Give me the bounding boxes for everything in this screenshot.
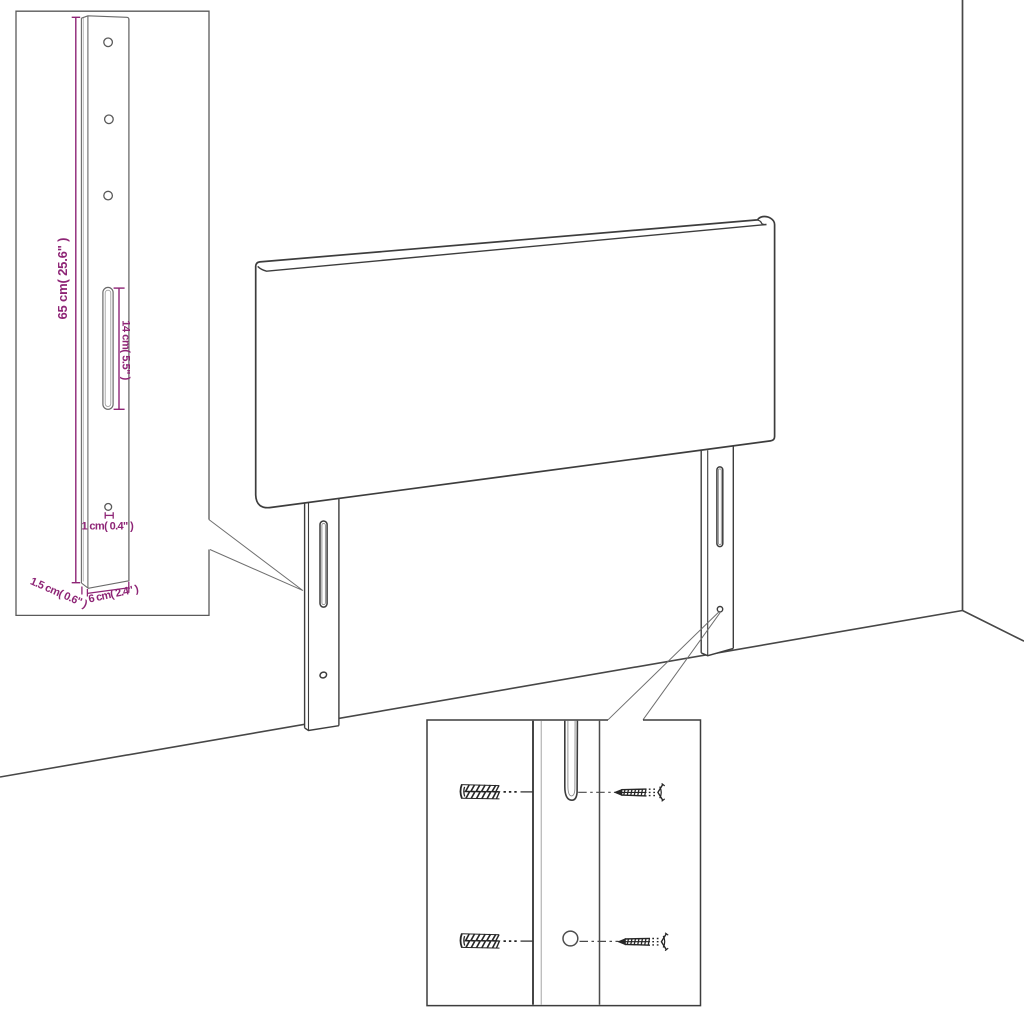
svg-text:1 cm( 0.4" ): 1 cm( 0.4" ) xyxy=(81,520,134,532)
svg-text:1.5 cm( 0.6" ): 1.5 cm( 0.6" ) xyxy=(28,576,89,611)
svg-text:14 cm( 5.5" ): 14 cm( 5.5" ) xyxy=(119,320,131,380)
svg-text:65 cm( 25.6" ): 65 cm( 25.6" ) xyxy=(55,238,70,320)
